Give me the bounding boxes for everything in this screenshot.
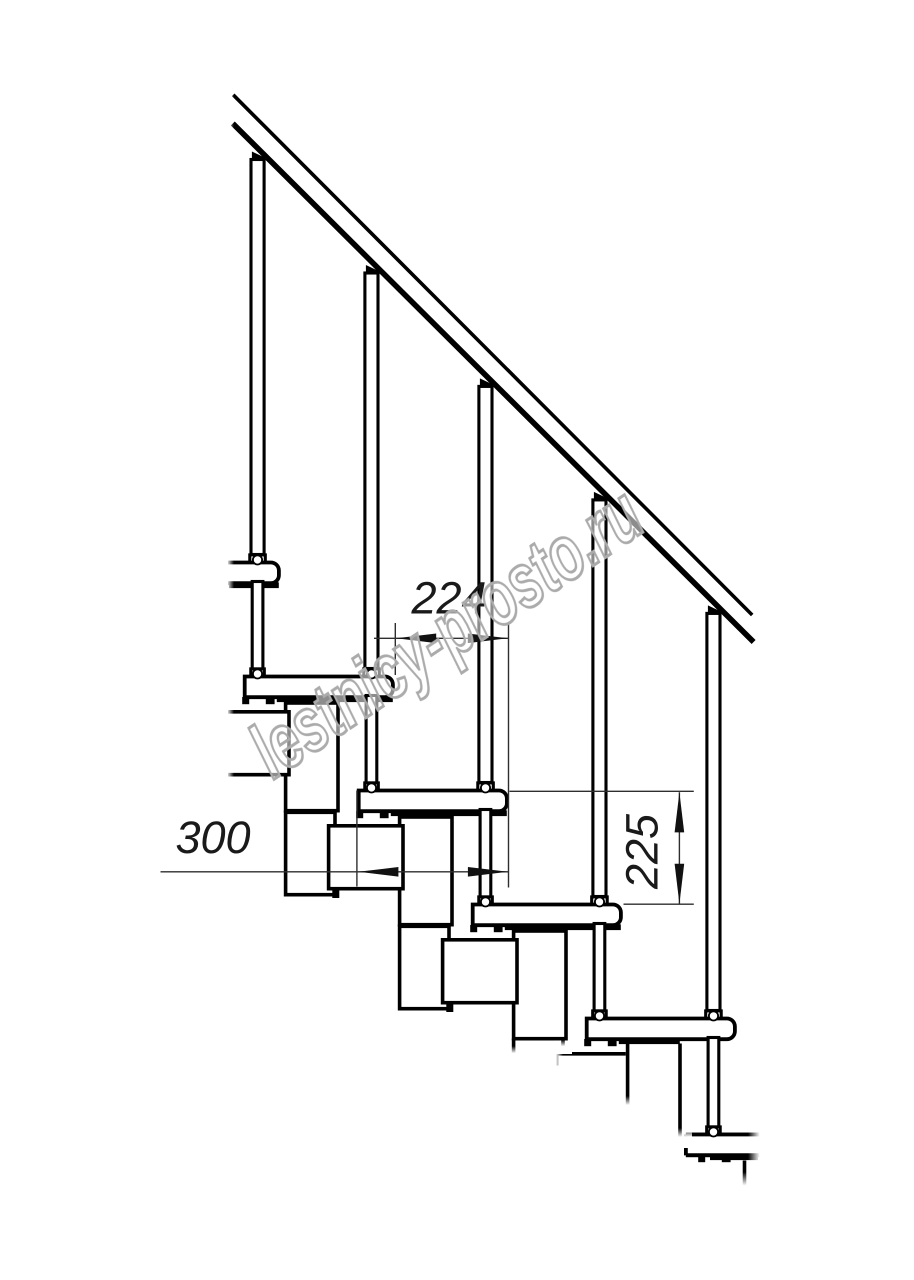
svg-text:225: 225 xyxy=(617,813,668,890)
svg-text:300: 300 xyxy=(175,812,250,863)
